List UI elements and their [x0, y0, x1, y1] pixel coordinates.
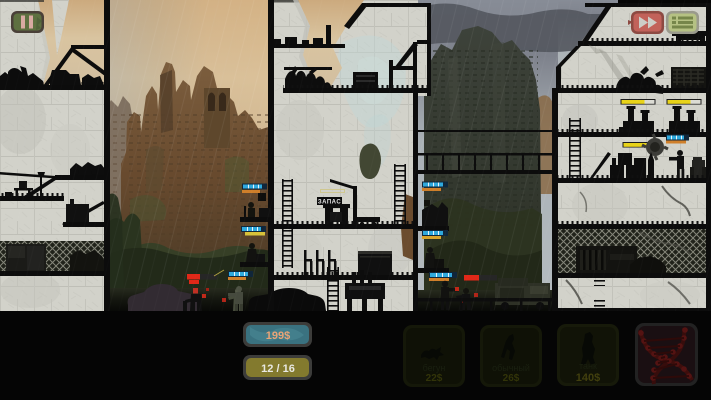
svg-text:199$: 199$: [266, 330, 290, 342]
svg-text:танк: танк: [579, 361, 597, 371]
svg-text:обычный: обычный: [492, 363, 530, 373]
svg-text:12 / 16: 12 / 16: [261, 363, 295, 375]
svg-text:22$: 22$: [426, 373, 443, 384]
svg-text:26$: 26$: [503, 373, 520, 384]
svg-text:140$: 140$: [576, 372, 600, 384]
svg-text:бегун: бегун: [423, 363, 446, 373]
